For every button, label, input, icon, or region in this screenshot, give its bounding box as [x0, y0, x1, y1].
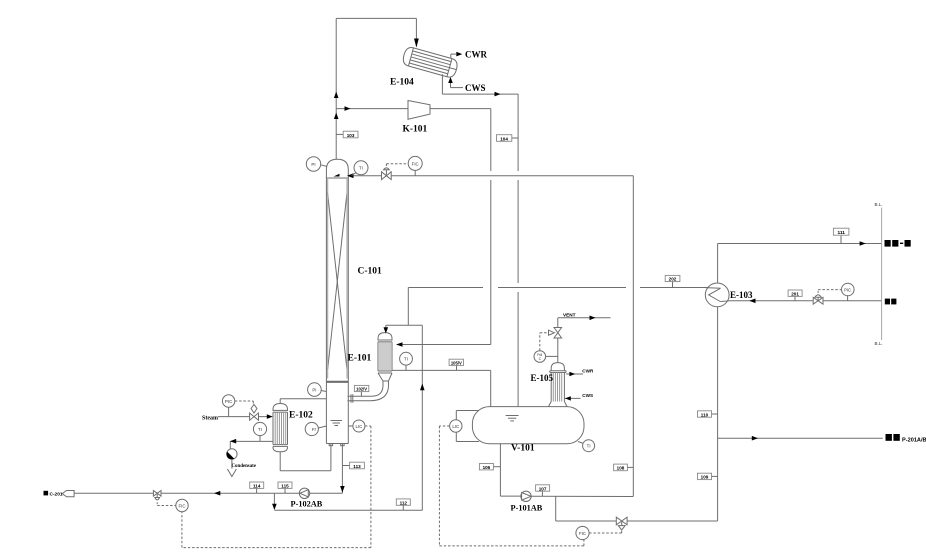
svg-text:K-101: K-101: [403, 125, 428, 135]
svg-text:E-101: E-101: [348, 354, 372, 364]
svg-text:C-201: C-201: [50, 492, 63, 498]
svg-text:106: 106: [483, 465, 491, 470]
svg-text:E-102: E-102: [289, 411, 313, 421]
svg-text:PI: PI: [312, 388, 316, 393]
svg-text:PIC: PIC: [844, 288, 851, 293]
svg-text:110: 110: [701, 412, 709, 417]
svg-text:104: 104: [500, 136, 508, 141]
svg-text:109: 109: [701, 475, 709, 480]
svg-text:114: 114: [253, 484, 261, 489]
svg-text:VENT: VENT: [563, 312, 576, 317]
svg-text:102/V: 102/V: [356, 387, 367, 392]
svg-text:Condensate: Condensate: [232, 464, 257, 469]
svg-text:105/V: 105/V: [451, 360, 462, 365]
svg-text:PIC: PIC: [225, 399, 232, 404]
svg-text:112: 112: [400, 500, 408, 505]
svg-text:P-101AB: P-101AB: [511, 504, 543, 513]
svg-text:B.L.: B.L.: [875, 202, 883, 207]
svg-text:115: 115: [281, 484, 289, 489]
svg-text:CWS: CWS: [582, 393, 593, 398]
svg-text:P-102AB: P-102AB: [291, 500, 323, 509]
svg-text:LIC: LIC: [355, 424, 362, 429]
svg-text:FIC: FIC: [579, 531, 586, 536]
svg-text:B.L.: B.L.: [875, 341, 883, 346]
svg-text:201: 201: [791, 292, 799, 297]
svg-text:TI: TI: [258, 427, 262, 432]
svg-text:PI: PI: [311, 162, 315, 167]
svg-text:108: 108: [617, 466, 625, 471]
svg-text:CWR: CWR: [582, 369, 594, 374]
svg-text:Steam: Steam: [202, 416, 218, 422]
svg-text:TI: TI: [587, 444, 591, 449]
svg-text:LIC: LIC: [452, 424, 459, 429]
svg-text:FIC: FIC: [412, 161, 419, 166]
svg-text:E-103: E-103: [730, 290, 753, 300]
svg-text:E-104: E-104: [390, 78, 414, 88]
svg-text:113: 113: [353, 464, 361, 469]
svg-text:TI: TI: [359, 166, 363, 171]
svg-text:CWR: CWR: [465, 50, 487, 60]
svg-text:C-101: C-101: [358, 266, 383, 276]
svg-text:103: 103: [347, 133, 355, 138]
svg-text:P-201A/B: P-201A/B: [902, 437, 926, 443]
svg-text:V-101: V-101: [511, 444, 535, 454]
svg-text:107: 107: [539, 486, 547, 491]
svg-text:E-105: E-105: [531, 373, 554, 383]
svg-text:111: 111: [837, 230, 845, 236]
svg-text:CWS: CWS: [465, 83, 486, 93]
svg-text:FIC: FIC: [178, 503, 185, 508]
svg-text:202: 202: [669, 277, 677, 282]
svg-text:TI: TI: [404, 357, 408, 362]
